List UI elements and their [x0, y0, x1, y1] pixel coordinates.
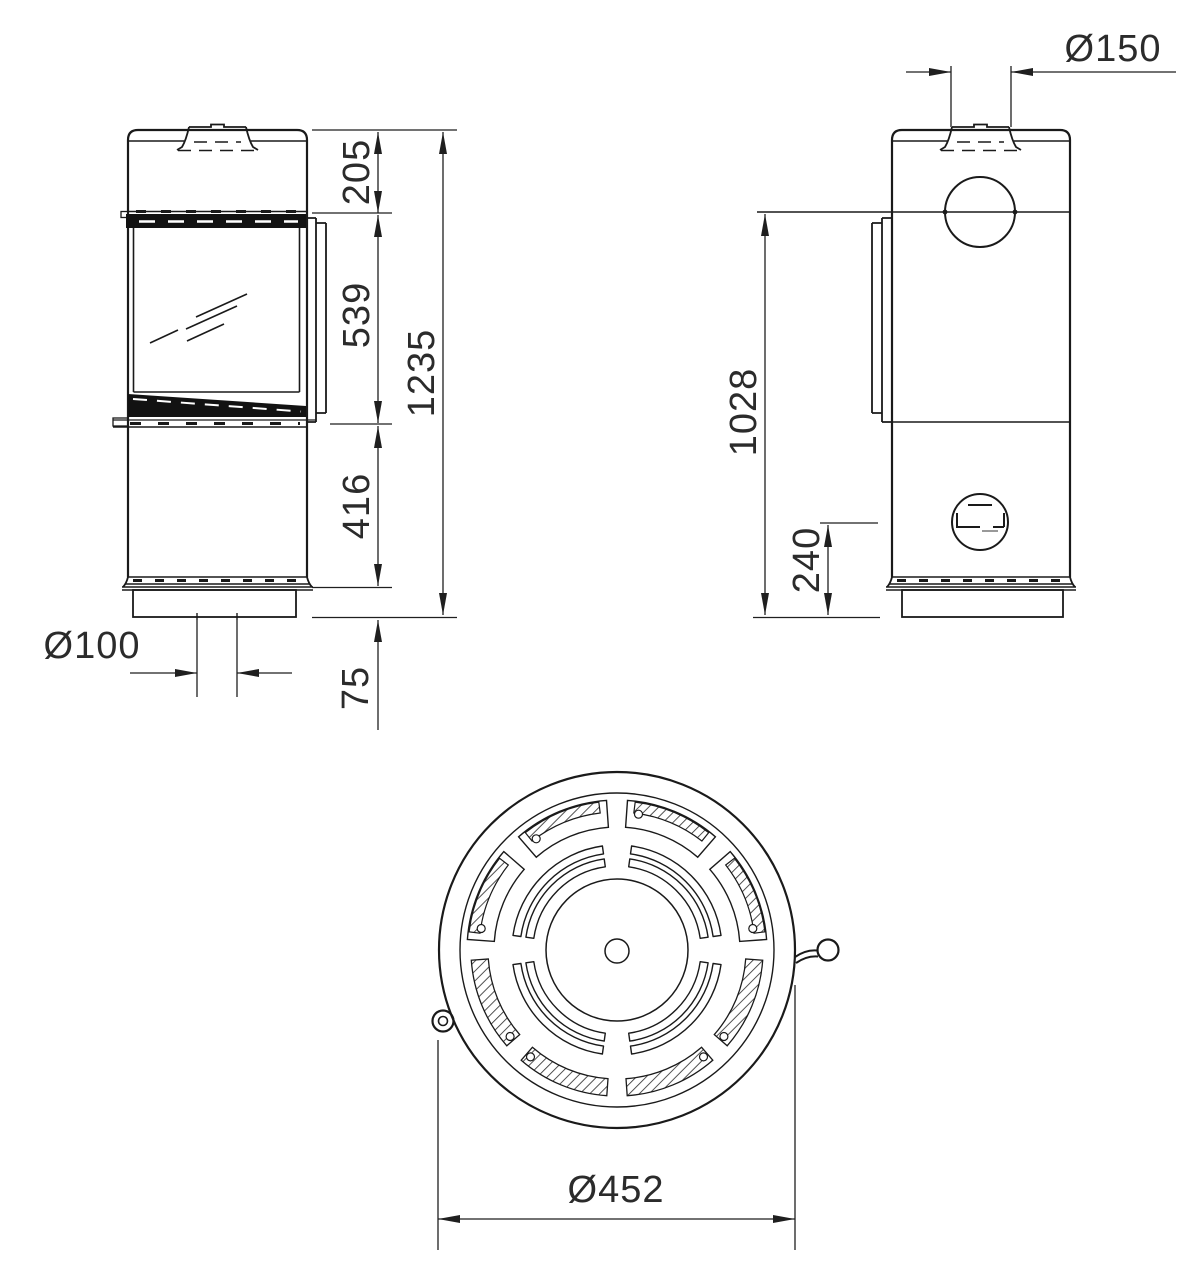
label-plinth-height: 75: [335, 666, 377, 710]
vent-hatch-strips-lower: [471, 959, 762, 1096]
side-body-outline: [892, 130, 1070, 577]
label-flue-diameter: Ø150: [1065, 28, 1162, 70]
label-floor-inlet: Ø100: [44, 625, 141, 667]
label-inlet-center-height: 240: [786, 527, 828, 593]
dim-floor-inlet: [130, 620, 292, 697]
top-plate-inner-edge: [460, 793, 774, 1107]
side-door-frame: [872, 218, 892, 422]
front-body-outline: [128, 130, 307, 577]
label-lower-section: 416: [336, 473, 378, 539]
label-body-diameter: Ø452: [568, 1169, 665, 1211]
technical-drawing-canvas: 205 539 1235 416 75 Ø100 Ø150 1028 240 Ø…: [0, 0, 1200, 1271]
inner-arc-slots: [513, 846, 721, 1054]
front-flue-collar: [177, 125, 258, 151]
label-total-height: 1235: [401, 329, 443, 418]
center-knob-hole: [605, 939, 629, 963]
front-plinth: [133, 590, 296, 617]
rear-air-intake: [952, 494, 1008, 550]
firebox-lid-circle: [546, 879, 688, 1021]
top-view: [433, 772, 839, 1128]
label-flue-center-height: 1028: [723, 368, 765, 457]
outer-vent-channels: [467, 800, 766, 941]
front-door-frame-right: [307, 218, 326, 422]
dimension-annotations: [130, 66, 1176, 1250]
glass-frame: [134, 228, 300, 392]
label-door-height: 539: [336, 282, 378, 348]
top-plate-outer-edge: [439, 772, 795, 1128]
side-flue-collar: [940, 125, 1021, 151]
front-view: [113, 125, 326, 621]
glass-reflection-lines: [150, 294, 247, 343]
door-handle-knob-left: [433, 1011, 454, 1032]
dim-flue-diameter: [906, 66, 1176, 127]
label-top-section: 205: [336, 139, 378, 205]
door-handle-knob-right: [795, 940, 839, 964]
side-plinth: [902, 590, 1063, 617]
